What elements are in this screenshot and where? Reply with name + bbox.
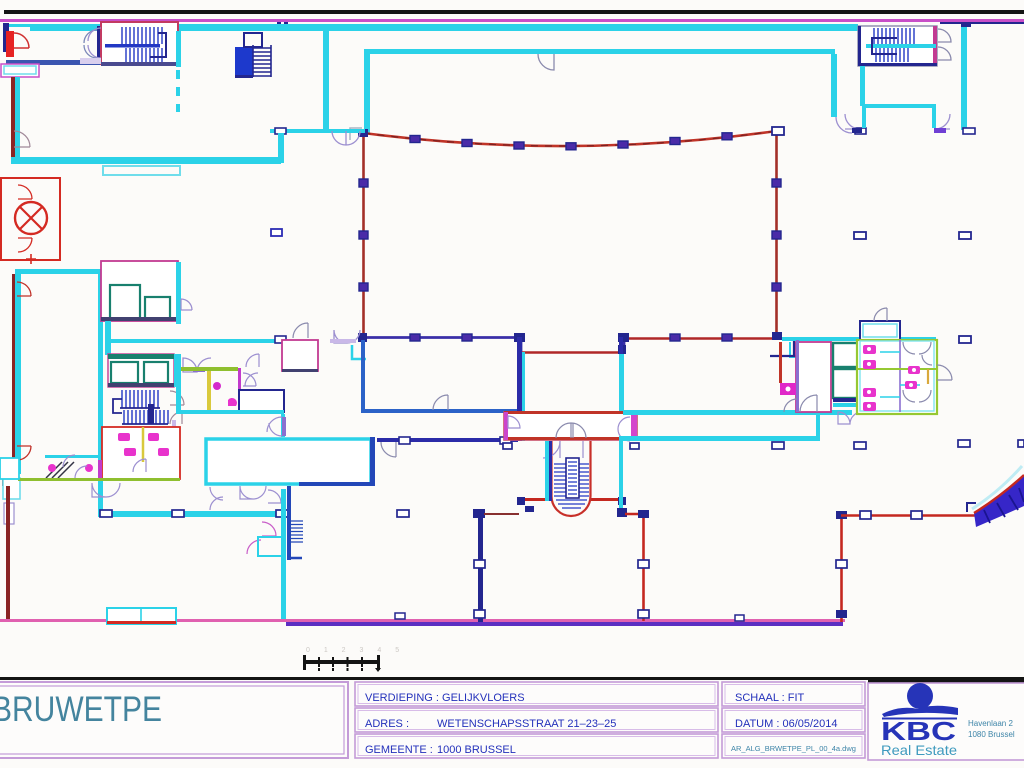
svg-text:ADRES :: ADRES :: [365, 718, 409, 730]
svg-text:0 1 2 3 4 5: 0 1 2 3 4 5: [306, 647, 405, 654]
svg-text:WETENSCHAPSSTRAAT 21–23–25: WETENSCHAPSSTRAAT 21–23–25: [437, 718, 616, 730]
svg-text:Havenlaan 2: Havenlaan 2: [968, 719, 1013, 728]
svg-text:DATUM : 06/05/2014: DATUM : 06/05/2014: [735, 718, 838, 730]
svg-text:Real Estate: Real Estate: [881, 742, 957, 758]
svg-text:1080 Brussel: 1080 Brussel: [968, 730, 1015, 739]
svg-text:GEMEENTE :: GEMEENTE :: [365, 744, 433, 756]
svg-text:SCHAAL : FIT: SCHAAL : FIT: [735, 692, 805, 704]
svg-text:VERDIEPING : GELIJKVLOERS: VERDIEPING : GELIJKVLOERS: [365, 692, 525, 704]
svg-text:BRUWETPE: BRUWETPE: [0, 690, 162, 729]
svg-text:AR_ALG_BRWETPE_PL_00_4a.dwg: AR_ALG_BRWETPE_PL_00_4a.dwg: [731, 744, 856, 753]
svg-text:1000 BRUSSEL: 1000 BRUSSEL: [437, 744, 516, 756]
